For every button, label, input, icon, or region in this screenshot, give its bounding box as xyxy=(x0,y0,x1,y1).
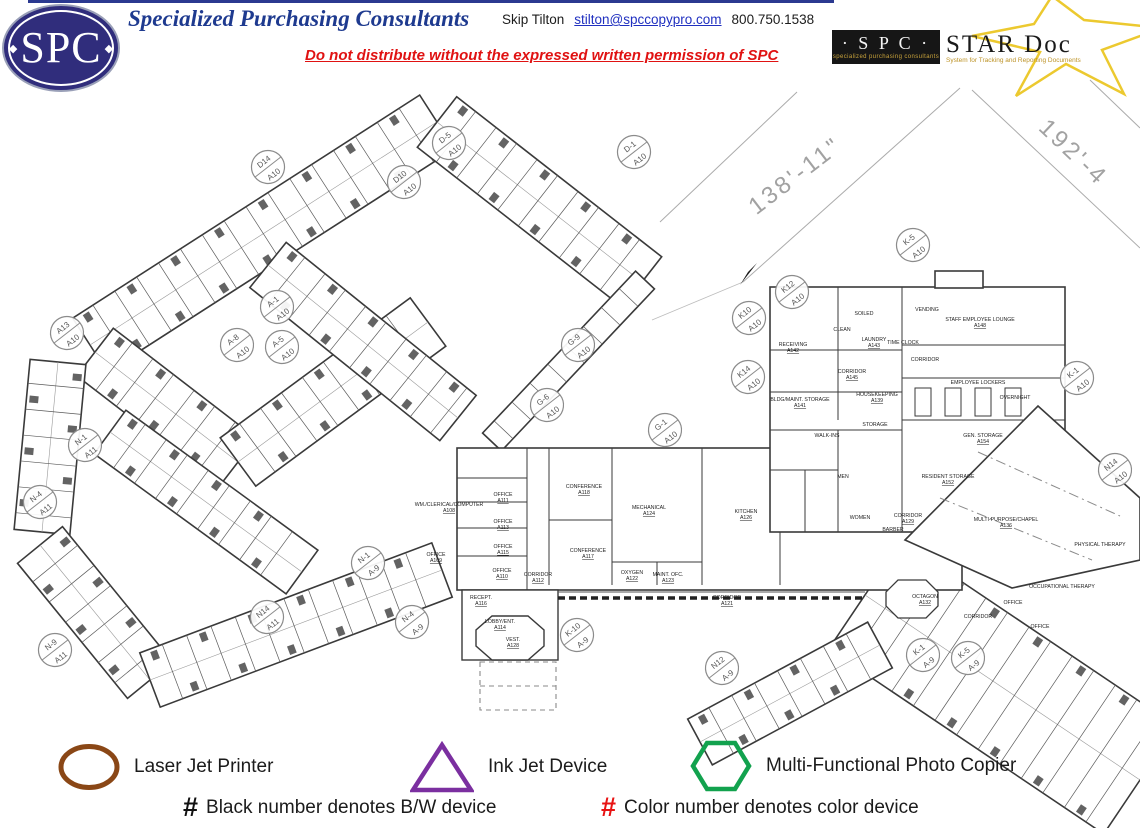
stardoc-spc-tagline: specialized purchasing consultants xyxy=(833,54,939,60)
legend-note-bw-text: Black number denotes B/W device xyxy=(206,797,496,819)
legend-note-color-text: Color number denotes color device xyxy=(624,797,919,819)
legend-label-ink-jet: Ink Jet Device xyxy=(488,756,607,778)
room-label: SOILED xyxy=(854,311,873,317)
legend-note-bw: # Black number denotes B/W device xyxy=(183,794,496,821)
stardoc-spc-box: · S P C · specialized purchasing consult… xyxy=(832,30,940,64)
room-label: CLEAN xyxy=(833,327,851,333)
legend-note-color: # Color number denotes color device xyxy=(601,794,919,821)
plan-balloon: D-1A10 xyxy=(611,129,657,175)
room-label: OFFICE xyxy=(1003,600,1023,606)
plan-balloon: K10A10 xyxy=(726,295,772,341)
wing-band xyxy=(483,271,655,451)
stardoc-name: STAR Doc xyxy=(946,31,1072,59)
plan-balloon: G-1A10 xyxy=(642,407,688,453)
room-label: CORRIDOR xyxy=(911,357,939,363)
legend-item-laser-jet: Laser Jet Printer xyxy=(58,744,273,790)
plan-balloon: A-8A10 xyxy=(214,322,260,368)
room-label: PHYSICAL THERAPY xyxy=(1074,542,1126,548)
room-label: OVERNIGHT xyxy=(1000,395,1032,401)
room-label: MEN xyxy=(837,474,849,480)
room-label: TIME CLOCK xyxy=(887,340,919,346)
legend-item-copier: Multi-Functional Photo Copier xyxy=(690,740,1016,792)
stardoc-tagline: System for Tracking and Reporting Docume… xyxy=(946,57,1081,64)
copier-hexagon-icon xyxy=(690,740,752,792)
plan-balloon: N12A-9 xyxy=(699,645,745,691)
dimension-label-2: 192'-4 xyxy=(1033,114,1112,191)
diamond-icon: ◆ xyxy=(9,42,17,55)
laser-jet-ellipse-icon xyxy=(58,744,120,790)
plan-balloon: N-9A11 xyxy=(32,627,78,673)
legend-label-copier: Multi-Functional Photo Copier xyxy=(766,755,1016,777)
black-hash-icon: # xyxy=(183,794,198,821)
contact-name: Skip Tilton xyxy=(502,12,564,27)
room-label: EMPLOYEE LOCKERS xyxy=(951,380,1006,386)
floor-plan: 138'-11" 192'-4 RECEPT.A116LOBBY/ENT.A11… xyxy=(0,0,1140,828)
plan-balloon: K-5A10 xyxy=(890,222,936,268)
room-label: OCCUPATIONAL THERAPY xyxy=(1029,584,1095,590)
dimension-lines: 138'-11" 192'-4 xyxy=(652,80,1140,320)
legend-label-laser-jet: Laser Jet Printer xyxy=(134,756,273,778)
corridor-wall xyxy=(558,592,865,598)
red-hash-icon: # xyxy=(601,794,616,821)
lobby-entrance xyxy=(462,590,558,710)
ink-jet-triangle-icon xyxy=(410,741,474,793)
room-label: CORRIDOR xyxy=(964,614,992,620)
contact-phone: 800.750.1538 xyxy=(732,12,815,27)
spc-logo-text: SPC xyxy=(20,26,101,70)
diamond-icon: ◆ xyxy=(105,42,113,55)
company-name: Specialized Purchasing Consultants xyxy=(128,6,469,32)
room-label: OFFICEA109 xyxy=(426,552,446,564)
room-label: BARBER xyxy=(882,527,904,533)
room-label: WALK-INS xyxy=(815,433,840,439)
room-label: VENDING xyxy=(915,307,939,313)
room-label: STORAGE xyxy=(862,422,888,428)
legend-item-ink-jet: Ink Jet Device xyxy=(410,741,607,793)
plan-balloon: A-5A10 xyxy=(259,324,305,370)
stardoc-spc-text: · S P C · xyxy=(842,34,930,52)
page: 138'-11" 192'-4 RECEPT.A116LOBBY/ENT.A11… xyxy=(0,0,1140,828)
header-rule xyxy=(28,0,834,3)
plan-balloon: K14A10 xyxy=(725,354,771,400)
dimension-label-1: 138'-11" xyxy=(744,132,848,220)
contact-email-link[interactable]: stilton@spccopypro.com xyxy=(574,12,721,27)
room-label: CORRIDORA121 xyxy=(713,595,741,607)
room-label: VEST.A128 xyxy=(506,637,520,649)
plan-balloon: K-10A-9 xyxy=(554,612,600,658)
room-label: OFFICE xyxy=(1030,624,1050,630)
room-label: WOMEN xyxy=(850,515,871,521)
distribution-warning: Do not distribute without the expressed … xyxy=(305,47,778,64)
spc-logo: ◆SPC◆ xyxy=(2,4,120,92)
contact-line: Skip Tiltonstilton@spccopypro.com800.750… xyxy=(502,12,814,27)
